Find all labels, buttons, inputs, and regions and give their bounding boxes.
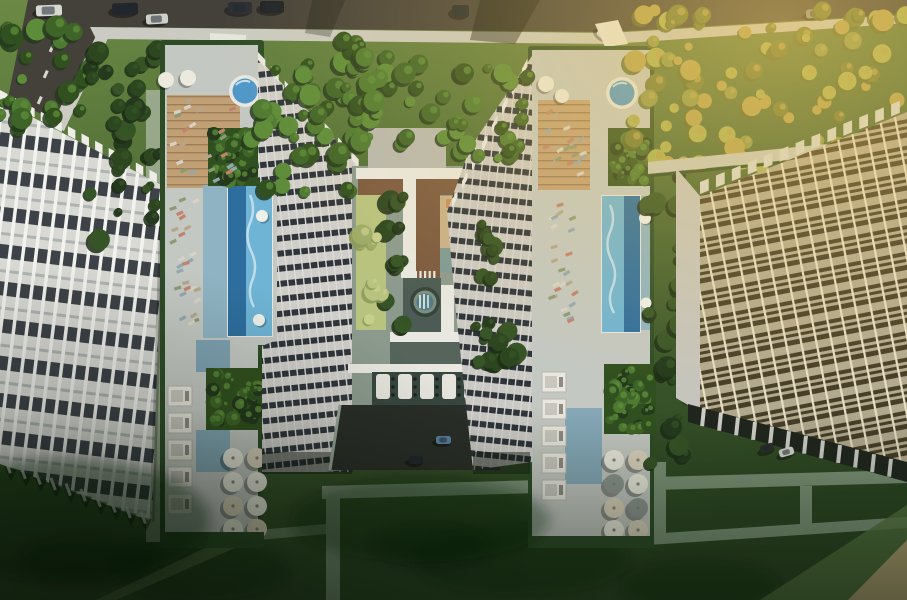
- corner-vignette: [0, 0, 907, 600]
- render-canvas: [0, 0, 907, 600]
- light-overlays: [0, 0, 907, 600]
- aerial-architectural-render: [0, 0, 907, 600]
